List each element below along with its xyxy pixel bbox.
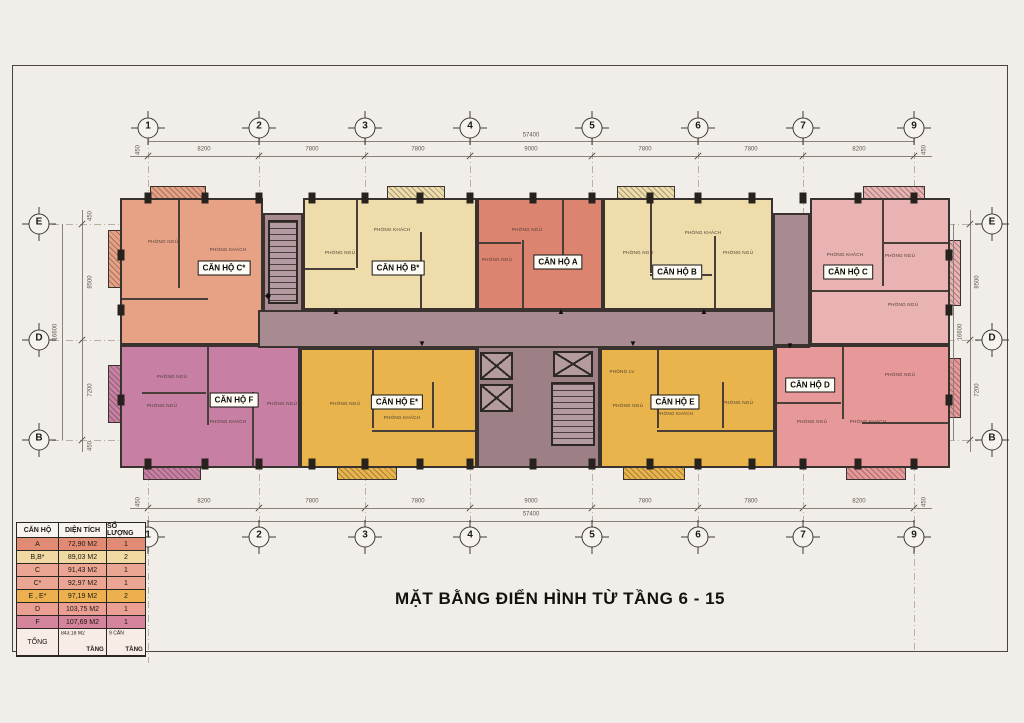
column-marker (946, 395, 953, 406)
room-label: PHÒNG LV (609, 370, 634, 375)
column-marker (118, 395, 125, 406)
interior-wall (479, 242, 521, 244)
dimension-text: 16600 (957, 324, 963, 341)
grid-marker-7: 7 (793, 527, 814, 548)
grid-marker-D: D (29, 330, 50, 351)
legend-row-C-cell: C* (17, 577, 59, 590)
interior-wall (372, 350, 374, 428)
dimension-text: 7800 (744, 498, 757, 504)
grid-marker-2: 2 (249, 118, 270, 139)
grid-marker-B: B (29, 430, 50, 451)
interior-wall (356, 200, 358, 268)
grid-marker-4: 4 (460, 527, 481, 548)
balcony (623, 467, 685, 480)
room-label: PHÒNG NGỦ (885, 254, 915, 259)
grid-marker-4: 4 (460, 118, 481, 139)
column-marker (946, 250, 953, 261)
grid-marker-9: 9 (904, 527, 925, 548)
dimension-text: 9000 (524, 146, 537, 152)
legend-row-BB-cell: 89,03 M2 (59, 551, 107, 564)
dimension-text: 7800 (411, 498, 424, 504)
dimension-text: 7800 (744, 146, 757, 152)
legend-row-EE: E , E*97,19 M22 (17, 590, 145, 603)
grid-marker-6: 6 (688, 118, 709, 139)
interior-wall (122, 298, 208, 300)
dimension-text: 16600 (52, 324, 58, 341)
room-label: PHÒNG NGỦ (148, 240, 178, 245)
room-label: PHÒNG NGỦ (623, 251, 653, 256)
grid-line-vertical (914, 545, 915, 651)
entry-arrow-icon: ▼ (418, 340, 426, 348)
legend-row-A-cell: 72,90 M2 (59, 538, 107, 551)
column-marker (695, 459, 702, 470)
grid-marker-6: 6 (688, 527, 709, 548)
dimension-text: 450 (135, 145, 141, 155)
entry-arrow-icon: ▼ (786, 342, 794, 350)
legend-total-row-cell: 9 CĂNTẦNG (107, 629, 145, 656)
total-value: 843.18 M2 (61, 631, 85, 636)
column-marker (946, 305, 953, 316)
room-label: PHÒNG KHÁCH (657, 412, 694, 417)
room-label: PHÒNG NGỦ (512, 228, 542, 233)
dimension-text: 57400 (523, 511, 540, 517)
room-label: PHÒNG NGỦ (147, 404, 177, 409)
column-marker (800, 459, 807, 470)
unit-label-b-star: CĂN HỘ B* (372, 261, 425, 276)
dimension-text: 7800 (638, 146, 651, 152)
legend-row-A-cell: A (17, 538, 59, 551)
legend-header-row-cell: CĂN HỘ (17, 523, 59, 538)
dimension-text: 8500 (974, 275, 980, 288)
legend-row-C-cell: C (17, 564, 59, 577)
room-label: PHÒNG KHÁCH (850, 420, 887, 425)
interior-wall (657, 430, 773, 432)
unit-label-c: CĂN HỘ C (823, 265, 873, 280)
legend-row-F: F107,69 M21 (17, 616, 145, 629)
column-marker (855, 459, 862, 470)
room-label: PHÒNG NGỦ (613, 404, 643, 409)
column-marker (362, 459, 369, 470)
grid-marker-5: 5 (582, 118, 603, 139)
room-label: PHÒNG NGỦ (723, 251, 753, 256)
legend-row-C: C*92,97 M21 (17, 577, 145, 590)
column-marker (417, 193, 424, 204)
dimension-line (82, 210, 83, 452)
interior-wall (432, 382, 434, 428)
corridor (258, 310, 810, 348)
interior-wall (714, 236, 716, 308)
legend-header-row-cell: SỐ LƯỢNG (107, 523, 145, 538)
elevator-box (480, 384, 513, 412)
column-marker (202, 193, 209, 204)
room-label: PHÒNG KHÁCH (374, 228, 411, 233)
grid-marker-3: 3 (355, 118, 376, 139)
interior-wall (142, 392, 206, 394)
room-label: PHÒNG NGỦ (325, 251, 355, 256)
dimension-text: 8200 (852, 498, 865, 504)
interior-wall (842, 347, 844, 419)
legend-row-A-cell: 1 (107, 538, 145, 551)
column-marker (749, 459, 756, 470)
legend-row-D-cell: D (17, 603, 59, 616)
dimension-text: 57400 (523, 132, 540, 138)
dimension-text: 8200 (197, 498, 210, 504)
legend-table: CĂN HỘDIỆN TÍCHSỐ LƯỢNGA72,90 M21B,B*89,… (16, 522, 146, 657)
column-marker (589, 459, 596, 470)
column-marker (118, 305, 125, 316)
unit-label-e-star: CĂN HỘ E* (371, 395, 423, 410)
stair-core (551, 382, 595, 446)
grid-marker-B: B (982, 430, 1003, 451)
column-marker (589, 193, 596, 204)
unit-label-e: CĂN HỘ E (650, 395, 699, 410)
interior-wall (777, 402, 841, 404)
room-label: PHÒNG NGỦ (330, 402, 360, 407)
balcony (143, 467, 201, 480)
interior-wall (178, 200, 180, 288)
interior-wall (884, 242, 948, 244)
dimension-line (970, 210, 971, 452)
elevator-box (480, 352, 513, 380)
room-label: PHÒNG KHÁCH (685, 231, 722, 236)
grid-marker-7: 7 (793, 118, 814, 139)
grid-marker-E: E (29, 214, 50, 235)
column-marker (202, 459, 209, 470)
column-marker (647, 459, 654, 470)
room-label: PHÒNG NGỦ (797, 420, 827, 425)
dimension-line (953, 224, 954, 440)
unit-d (775, 345, 950, 468)
dimension-text: 450 (921, 497, 927, 507)
grid-marker-D: D (982, 330, 1003, 351)
unit-label-a: CĂN HỘ A (533, 255, 582, 270)
column-marker (256, 459, 263, 470)
interior-wall (562, 200, 564, 258)
column-marker (749, 193, 756, 204)
legend-row-C-cell: 92,97 M2 (59, 577, 107, 590)
legend-row-C-cell: 1 (107, 577, 145, 590)
dimension-text: 7800 (411, 146, 424, 152)
dimension-text: 450 (87, 211, 93, 221)
legend-row-EE-cell: E , E* (17, 590, 59, 603)
legend-row-F-cell: F (17, 616, 59, 629)
dimension-line (62, 224, 63, 440)
legend-total-row-cell: 843.18 M2TẦNG (59, 629, 107, 656)
legend-header-row: CĂN HỘDIỆN TÍCHSỐ LƯỢNG (17, 523, 145, 538)
column-marker (911, 459, 918, 470)
grid-marker-9: 9 (904, 118, 925, 139)
entry-arrow-icon: ▲ (700, 308, 708, 316)
unit-label-b: CĂN HỘ B (652, 265, 702, 280)
column-marker (530, 193, 537, 204)
dimension-text: 7200 (87, 383, 93, 396)
room-label: PHÒNG NGỦ (888, 303, 918, 308)
room-label: PHÒNG KHÁCH (384, 416, 421, 421)
column-marker (309, 193, 316, 204)
dimension-text: 9000 (524, 498, 537, 504)
column-marker (647, 193, 654, 204)
room-label: PHÒNG KHÁCH (210, 248, 247, 253)
room-label: PHÒNG KHÁCH (210, 420, 247, 425)
column-marker (118, 250, 125, 261)
interior-wall (305, 268, 355, 270)
room-label: PHÒNG NGỦ (885, 373, 915, 378)
column-marker (800, 193, 807, 204)
legend-total-row-cell: TỔNG (17, 629, 59, 656)
grid-marker-E: E (982, 214, 1003, 235)
column-marker (530, 459, 537, 470)
room-label: PHÒNG NGỦ (482, 258, 512, 263)
column-marker (467, 193, 474, 204)
dimension-text: 7200 (974, 383, 980, 396)
room-label: PHÒNG KHÁCH (827, 253, 864, 258)
legend-row-C-cell: 91,43 M2 (59, 564, 107, 577)
entry-arrow-icon: ▲ (557, 308, 565, 316)
interior-wall (522, 240, 524, 308)
column-marker (309, 459, 316, 470)
dimension-line (148, 521, 914, 522)
corridor-shaft-right (773, 213, 810, 346)
floor-plan-canvas: ▲▲▲▼▼▼◆PHÒNG NGỦPHÒNG KHÁCHCĂN HỘ C*PHÒN… (0, 0, 1024, 723)
grid-marker-3: 3 (355, 527, 376, 548)
dimension-text: 8500 (87, 275, 93, 288)
dimension-line (130, 508, 932, 509)
interior-wall (207, 347, 209, 425)
column-marker (256, 193, 263, 204)
dimension-text: 450 (87, 441, 93, 451)
unit-label-d: CĂN HỘ D (785, 378, 835, 393)
column-marker (145, 193, 152, 204)
grid-marker-1: 1 (138, 118, 159, 139)
dimension-text: 7800 (305, 498, 318, 504)
dimension-line (148, 141, 914, 142)
column-marker (911, 193, 918, 204)
grid-marker-5: 5 (582, 527, 603, 548)
unit-label-c-star: CĂN HỘ C* (198, 261, 251, 276)
column-marker (695, 193, 702, 204)
dimension-line (130, 156, 932, 157)
legend-row-D-cell: 1 (107, 603, 145, 616)
column-marker (145, 459, 152, 470)
legend-row-D: D103,75 M21 (17, 603, 145, 616)
legend-row-D-cell: 103,75 M2 (59, 603, 107, 616)
interior-wall (650, 200, 652, 273)
entry-arrow-icon: ▼ (629, 340, 637, 348)
legend-row-BB: B,B*89,03 M22 (17, 551, 145, 564)
unit-label-f: CĂN HỘ F (210, 393, 259, 408)
total-value: 9 CĂN (109, 631, 124, 636)
drawing-sheet: ▲▲▲▼▼▼◆PHÒNG NGỦPHÒNG KHÁCHCĂN HỘ C*PHÒN… (0, 0, 1024, 723)
dimension-text: 7800 (638, 498, 651, 504)
total-unit: TẦNG (126, 647, 143, 653)
legend-row-A: A72,90 M21 (17, 538, 145, 551)
column-marker (362, 193, 369, 204)
legend-row-C-cell: 1 (107, 564, 145, 577)
interior-wall (812, 290, 948, 292)
legend-row-BB-cell: 2 (107, 551, 145, 564)
column-marker (855, 193, 862, 204)
room-label: PHÒNG NGỦ (267, 402, 297, 407)
entry-arrow-icon: ◆ (265, 292, 271, 300)
legend-row-C: C91,43 M21 (17, 564, 145, 577)
legend-total-row: TỔNG843.18 M2TẦNG9 CĂNTẦNG (17, 629, 145, 656)
grid-marker-2: 2 (249, 527, 270, 548)
grid-line-vertical (148, 545, 149, 663)
dimension-text: 7800 (305, 146, 318, 152)
dimension-text: 8200 (197, 146, 210, 152)
elevator-box (553, 351, 593, 377)
total-unit: TẦNG (87, 647, 104, 653)
interior-wall (372, 430, 475, 432)
legend-row-EE-cell: 2 (107, 590, 145, 603)
dimension-text: 450 (135, 497, 141, 507)
legend-header-row-cell: DIỆN TÍCH (59, 523, 107, 538)
dimension-text: 8200 (852, 146, 865, 152)
room-label: PHÒNG NGỦ (157, 375, 187, 380)
dimension-text: 450 (921, 145, 927, 155)
column-marker (417, 459, 424, 470)
room-label: PHÒNG NGỦ (723, 401, 753, 406)
legend-row-F-cell: 107,69 M2 (59, 616, 107, 629)
legend-row-F-cell: 1 (107, 616, 145, 629)
entry-arrow-icon: ▲ (332, 308, 340, 316)
legend-row-EE-cell: 97,19 M2 (59, 590, 107, 603)
stair-left (268, 220, 298, 304)
column-marker (467, 459, 474, 470)
legend-row-BB-cell: B,B* (17, 551, 59, 564)
drawing-title: MẶT BẰNG ĐIỂN HÌNH TỪ TẦNG 6 - 15 (350, 589, 770, 609)
